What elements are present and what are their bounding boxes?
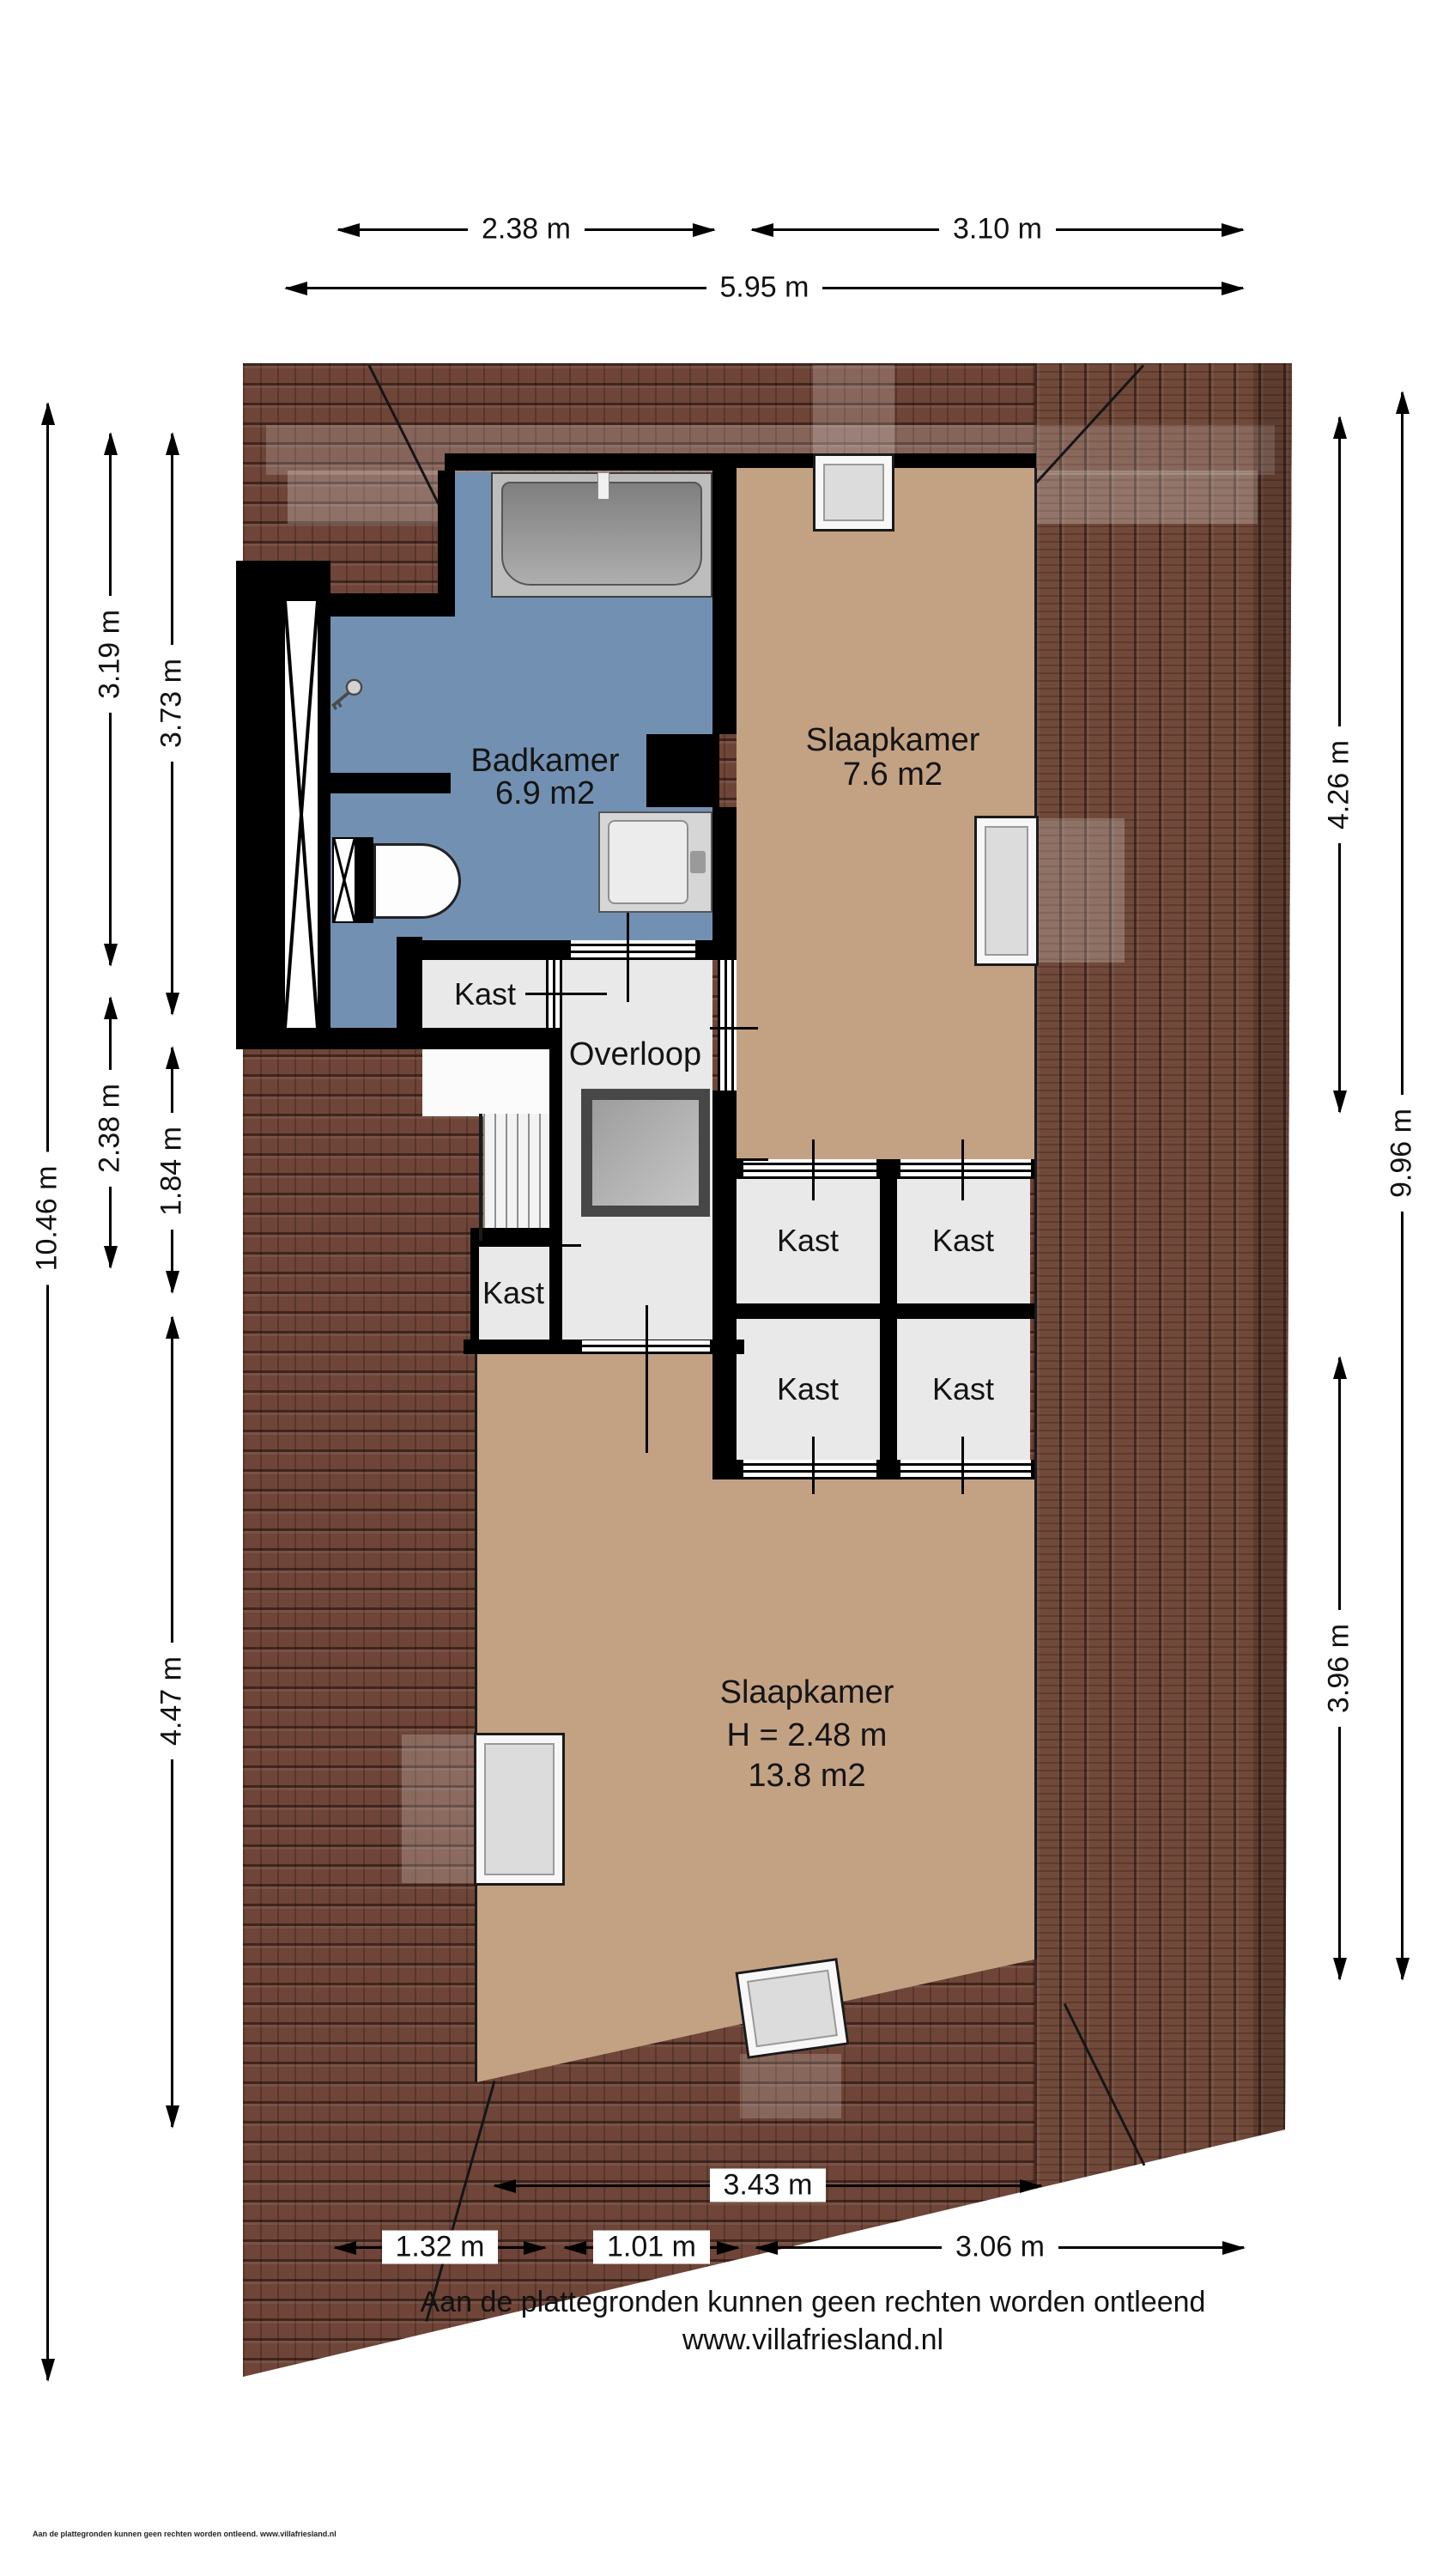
dim-label: 1.84 m [155,1113,189,1230]
dim-left-319: 3.19 m [96,434,124,965]
dim-label: 3.10 m [939,213,1056,246]
room-label-kast-1: Kast [454,979,516,1010]
dim-label: 4.26 m [1323,726,1356,843]
shaft-window [285,601,318,1028]
dim-label: 5.95 m [706,271,823,305]
window-pane [484,1743,555,1875]
wall [470,1228,479,1354]
roof-shade-edge [1253,363,1292,2166]
dim-top-595: 5.95 m [286,274,1243,301]
dim-label: 2.38 m [468,213,585,246]
door-hatch [900,1159,1031,1179]
window-ghost [813,365,894,455]
stair-void-opening [581,1089,710,1217]
dim-left-238: 2.38 m [96,998,124,1267]
door-tick [710,1027,758,1030]
dim-label: 4.47 m [155,1643,189,1759]
door-tick [646,1305,648,1453]
room-label-kast-2: Kast [482,1278,544,1309]
shaft-window-cross-icon [285,601,318,1028]
wall [397,940,568,960]
door-tick [961,1139,964,1200]
wall [712,1091,737,1479]
bathtub [491,472,712,598]
dim-left-447: 4.47 m [158,1317,185,2127]
wall [549,1028,562,1354]
dim-label: 3.73 m [155,645,189,762]
floor-landing [422,1049,549,1116]
sink [598,811,712,913]
wall [880,1159,897,1479]
dim-right-996: 9.96 m [1388,392,1416,1979]
door-hatch [571,940,695,960]
door-tick [627,912,629,1002]
footer-website: www.villafriesland.nl [682,2324,943,2357]
dim-label: 3.06 m [942,2231,1058,2264]
door-hatch [900,1460,1031,1479]
door-tick [961,1437,964,1494]
room-label-kast-6: Kast [932,1374,994,1405]
dim-left-184: 1.84 m [158,1048,185,1292]
dim-left-373: 3.73 m [158,434,185,1014]
dim-label: 3.43 m [710,2169,827,2202]
window-pane [985,826,1028,956]
room-height-slaapkamer-beneden: H = 2.48 m [727,1719,888,1752]
room-label-overloop: Overloop [569,1038,701,1071]
room-label-kast-5: Kast [777,1374,839,1405]
wall [322,773,451,793]
wall [712,455,737,734]
dim-label: 1.32 m [382,2231,499,2264]
room-label-kast-3: Kast [777,1225,839,1256]
sink-faucet-icon [690,851,706,873]
dim-bottom-101: 1.01 m [565,2233,738,2261]
dim-right-426: 4.26 m [1325,417,1353,1112]
door-tick [812,1437,815,1494]
dim-label: 1.01 m [593,2231,710,2264]
window-ghost [402,1735,476,1883]
bathtub-faucet-icon [597,472,609,500]
stairs [483,1114,549,1241]
room-area-badkamer: 6.9 m2 [495,777,595,810]
wall-pier [646,734,719,807]
window-ghost [1036,818,1125,963]
window [974,816,1039,966]
door-tick [525,993,607,995]
window-pane [747,1970,838,2048]
window-pane [823,464,884,521]
roof-edge-line [1034,468,1037,1959]
window [474,1733,565,1886]
corner-note: Aan de plattegronden kunnen geen rechten… [33,2530,336,2538]
floorplan-page: Badkamer 6.9 m2 Slaapkamer 7.6 m2 Overlo… [0,0,1449,2576]
dim-label: 9.96 m [1385,1095,1419,1212]
dim-label: 10.46 m [31,1152,64,1285]
window [735,1958,849,2059]
wall [236,561,285,1049]
footer-disclaimer: Aan de plattegronden kunnen geen rechten… [421,2286,1206,2319]
dim-bottom-132: 1.32 m [335,2233,545,2261]
wall [397,937,422,1049]
dim-top-238: 2.38 m [338,216,714,243]
dim-label: 3.96 m [1323,1610,1356,1727]
wall [318,601,330,1028]
room-label-kast-4: Kast [932,1225,994,1256]
sink-basin [608,820,688,904]
toilet-window [332,837,356,923]
room-area-slaapkamer-beneden: 13.8 m2 [748,1759,865,1792]
door-hatch [743,1460,876,1479]
dim-label: 3.19 m [94,596,127,713]
room-label-slaapkamer-beneden: Slaapkamer [720,1676,894,1709]
door-tick [721,1158,768,1161]
room-label-slaapkamer-boven: Slaapkamer [806,724,980,756]
wall [236,593,455,617]
wall [445,453,725,471]
door-tick [530,1244,581,1247]
floor-slaapkamer-boven [737,468,1034,1159]
dim-bottom-306: 3.06 m [756,2233,1244,2261]
dim-right-396: 3.96 m [1325,1358,1353,1979]
dim-label: 2.38 m [94,1070,127,1187]
wall [438,471,455,617]
room-area-slaapkamer-boven: 7.6 m2 [843,758,943,791]
dim-bottom-343: 3.43 m [494,2172,1041,2199]
wall [712,807,737,960]
door-hatch [743,1159,876,1179]
door-hatch [718,960,737,1091]
toilet-cistern [356,837,373,923]
window [813,453,894,532]
roof-edge-line [475,1354,477,2082]
dim-left-1046: 10.46 m [33,404,61,2380]
door-tick [812,1139,815,1200]
dim-top-310: 3.10 m [752,216,1243,243]
window-ghost [740,2054,841,2118]
toilet [373,843,461,919]
room-label-badkamer: Badkamer [470,744,619,777]
toilet-window-cross-icon [334,839,355,921]
key-icon [324,677,366,713]
stair-edge-line [479,1114,482,1241]
